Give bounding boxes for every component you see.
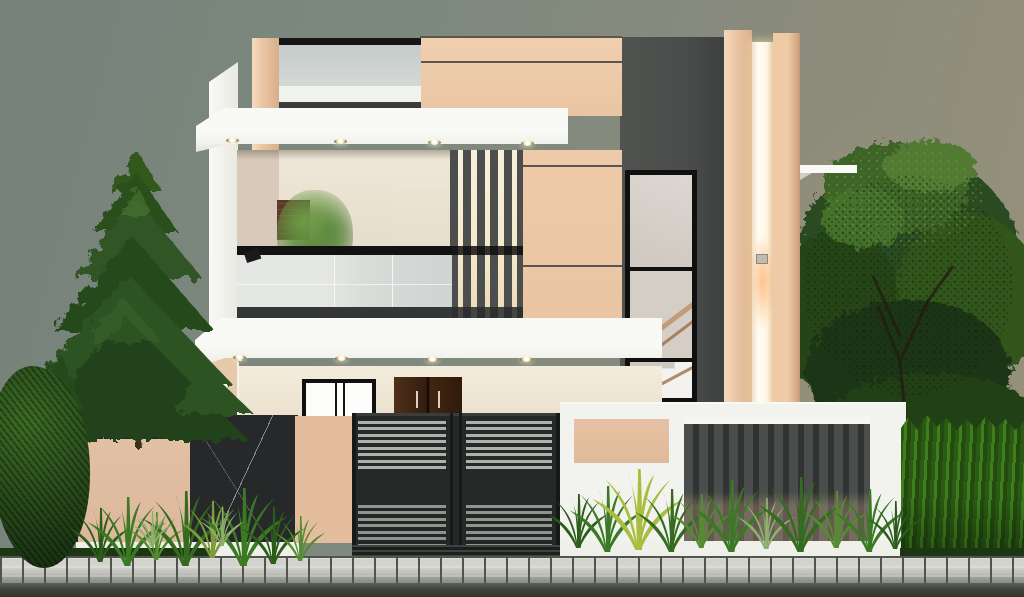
hedge <box>901 412 1024 562</box>
fence-slat-panel <box>684 424 870 541</box>
beige-wall-panel-right <box>574 419 669 463</box>
gate-slats-upper <box>358 421 446 471</box>
beige-wall-section <box>295 416 353 543</box>
gate-slats-upper <box>466 421 552 471</box>
gate-top-rail <box>352 413 560 416</box>
gate-frame-post <box>352 413 356 558</box>
beige-wall-panel <box>78 439 190 544</box>
gate-center-post <box>450 413 453 558</box>
stone-kerb <box>0 556 1024 586</box>
gate-slats-lower <box>358 505 446 545</box>
gate-center-post <box>459 413 462 558</box>
entrance-gate <box>352 413 560 558</box>
gate-slats-lower <box>466 505 552 545</box>
render-canvas <box>0 0 1024 597</box>
fence-top-rail <box>684 417 870 424</box>
fence-louvers <box>684 417 870 541</box>
road <box>0 583 1024 597</box>
